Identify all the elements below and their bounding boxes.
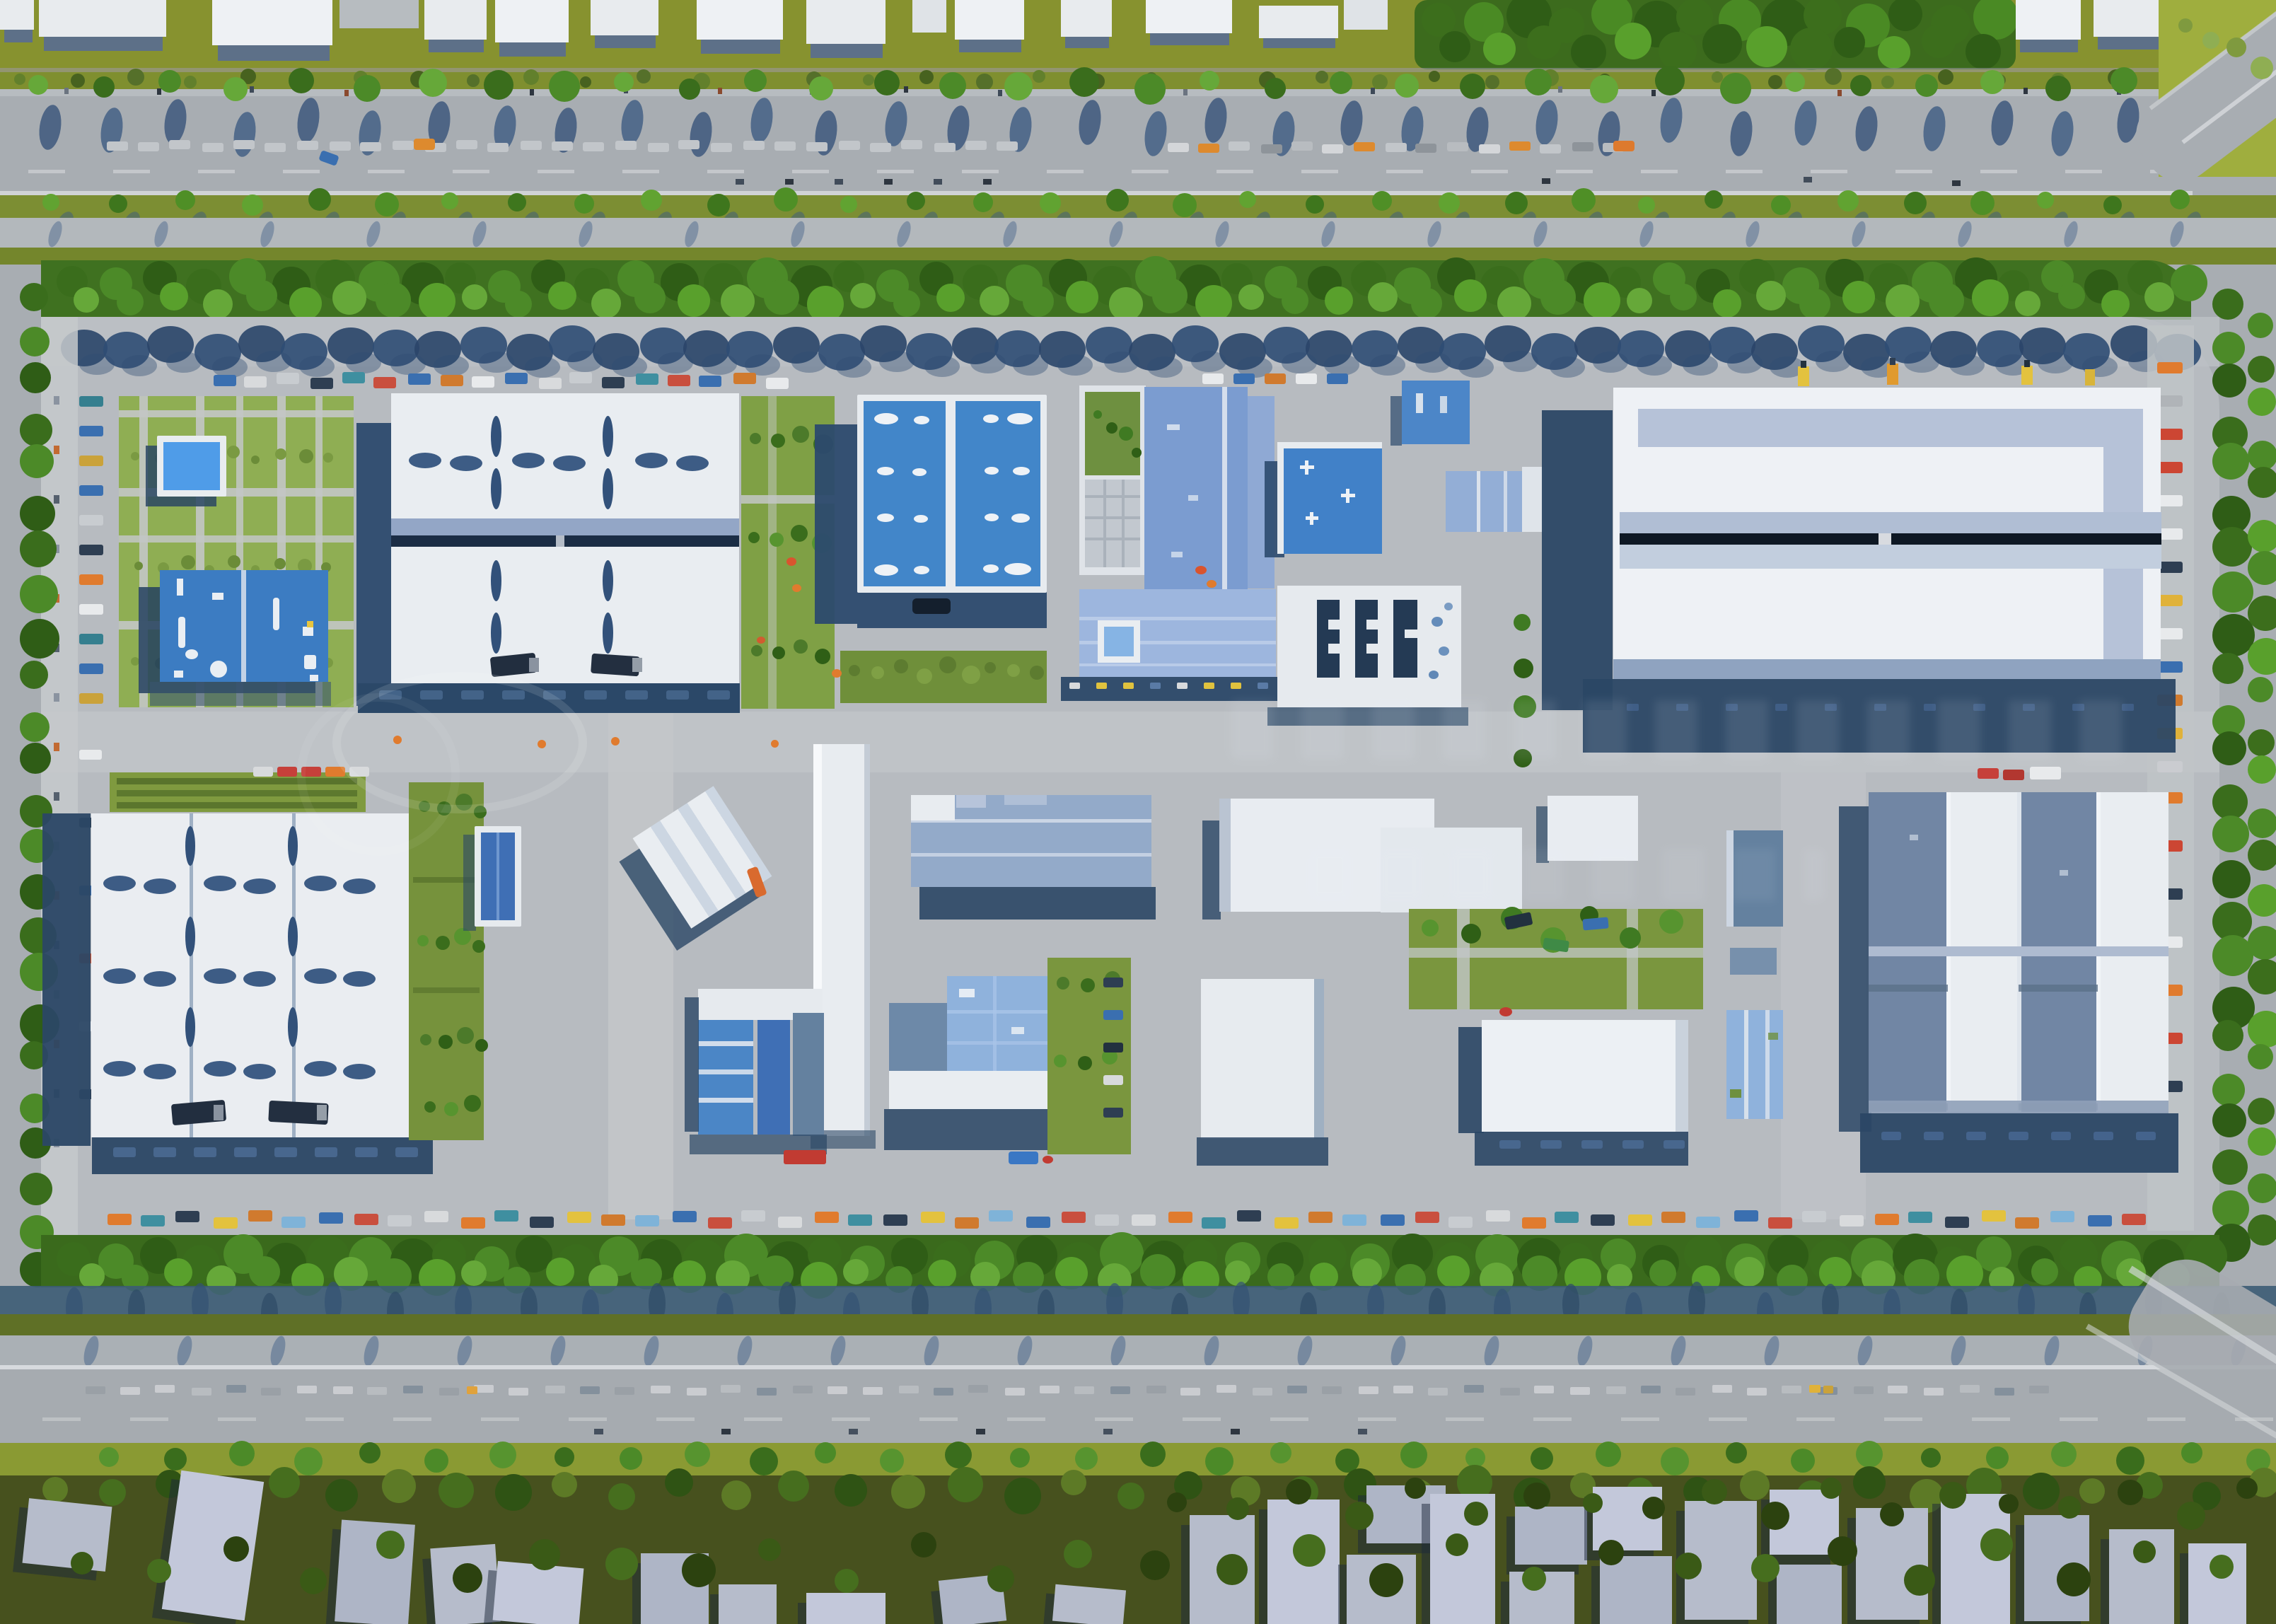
annex2-line — [1477, 471, 1480, 532]
cross-mark — [1305, 460, 1308, 475]
bottom-trees-over — [147, 1559, 171, 1583]
small-blue-block-shadow — [1390, 396, 1402, 446]
grove-trees — [1439, 31, 1470, 62]
warehouse1-west-shadow — [356, 423, 392, 706]
verge-trees-south — [99, 1447, 119, 1467]
roof-equipment-icon-yellow — [307, 621, 313, 627]
median-trees — [641, 190, 662, 211]
north-trees — [2015, 291, 2040, 316]
median-vehicle — [793, 1386, 813, 1393]
parked-car-south-row — [1486, 1210, 1510, 1222]
flower-bed-red — [757, 637, 765, 644]
hedge-dots — [523, 69, 539, 85]
lane-dash — [1884, 1417, 1922, 1421]
verge-trees — [1069, 67, 1099, 97]
median-vehicle — [1572, 142, 1593, 151]
dock-door-mark — [2136, 1132, 2156, 1140]
median-vehicle — [86, 1386, 105, 1394]
west-tree-column — [20, 362, 51, 393]
bottom-trees — [608, 1483, 635, 1510]
cone — [611, 737, 620, 746]
roof-unit — [959, 989, 975, 997]
parked-car-south-row — [1342, 1214, 1366, 1226]
truck-cab — [214, 1105, 223, 1120]
roof-vent-pod — [409, 453, 441, 468]
inner-garden-trees — [792, 426, 809, 443]
top-building — [806, 0, 886, 44]
median-vehicle — [1570, 1387, 1590, 1395]
roof-vent-drop — [185, 917, 195, 956]
roof-vent-drop — [603, 560, 613, 601]
bottom-trees-over — [2210, 1555, 2234, 1579]
dock-door-mark — [1622, 1140, 1644, 1149]
north-tree-shadow-soft — [1683, 354, 1718, 376]
lane-dash — [1386, 170, 1423, 173]
parked-car-west — [79, 604, 103, 615]
parked-car-east — [2157, 628, 2183, 639]
north-tree-shadow-soft — [1324, 354, 1359, 376]
parked-car-mid-road — [277, 767, 297, 777]
verge-trees — [419, 69, 447, 97]
verge-trees — [874, 70, 900, 95]
roof-vent-pod — [103, 968, 136, 984]
roof-vent-pod — [144, 878, 176, 894]
roof-equipment-icon — [177, 579, 183, 596]
roof-vent-pod — [450, 456, 482, 471]
dock-door-mark — [1881, 1132, 1901, 1140]
bottom-trees-over — [1293, 1534, 1325, 1567]
parked-car-south-row — [883, 1214, 907, 1226]
east-tree-column — [2212, 364, 2246, 398]
skylight-blob — [1007, 413, 1033, 424]
bottom-trees-over — [1999, 1494, 2019, 1514]
bottom-trees — [1061, 1470, 1086, 1495]
median-vehicle — [393, 141, 414, 150]
median-vehicle — [1386, 143, 1407, 152]
roof-banner-tip — [1890, 358, 1895, 365]
inner-garden-trees — [751, 645, 762, 656]
orange-car — [832, 669, 842, 678]
hedge-dots — [127, 69, 144, 86]
skylight-blob — [983, 564, 999, 573]
median-trees — [574, 194, 594, 214]
bottom-trees-over — [987, 1565, 1014, 1592]
warehouse2-lower-slope — [1620, 545, 2161, 569]
red-car — [1499, 1007, 1512, 1016]
north-trees — [1886, 284, 1920, 318]
garden-path — [119, 410, 354, 417]
parked-car-north-row — [277, 373, 299, 384]
lane-dash — [1095, 1417, 1133, 1421]
dock-door-mark — [395, 1147, 418, 1157]
parked-car-north-row — [441, 375, 463, 386]
truck-cab — [632, 658, 642, 672]
parked-car-south-row — [1802, 1211, 1826, 1222]
east-tree-column — [2212, 572, 2253, 613]
verge-trees-south — [1921, 1448, 1941, 1468]
residence-block — [719, 1584, 777, 1624]
verge-trees — [28, 75, 48, 95]
north-trees — [591, 289, 621, 318]
lane-dash — [2065, 170, 2102, 173]
east-tree-column — [2212, 731, 2246, 765]
pedestrian-dot — [904, 86, 908, 93]
lane-dash — [1895, 170, 1932, 173]
lane-dash — [113, 170, 150, 173]
corner-grass-tufts — [2178, 18, 2193, 33]
panel-building-shadow — [685, 997, 699, 1132]
parked-car-south-row — [1908, 1212, 1932, 1223]
verge-trees — [939, 72, 966, 99]
median-trees — [508, 193, 526, 211]
roof-vent-pod — [512, 453, 545, 468]
median-trees — [1106, 189, 1129, 211]
north-trees — [1756, 281, 1786, 311]
parked-car-south-row — [175, 1211, 199, 1222]
north-trees — [764, 279, 799, 315]
east-tree-column — [2212, 527, 2252, 567]
pavilion-blue-roof — [163, 442, 220, 490]
top-building — [39, 0, 166, 37]
south-road — [0, 1369, 2276, 1443]
parked-car-mid-road — [253, 767, 273, 777]
parked-car-south-row — [248, 1210, 272, 1222]
north-trees — [1972, 279, 2009, 316]
median-vehicle — [863, 1387, 883, 1395]
east-tree-column — [2248, 388, 2276, 416]
scooter-row — [1177, 683, 1188, 689]
parked-car-mid — [1103, 1010, 1123, 1020]
median-vehicle — [1854, 1386, 1874, 1394]
parked-car-south-row — [708, 1217, 732, 1229]
east-tree-column — [2248, 356, 2275, 383]
east-tree-column — [2212, 816, 2249, 852]
east-tree-column — [2212, 1190, 2249, 1227]
roof-vent-drop — [491, 468, 501, 509]
pedestrian-dot — [64, 88, 69, 94]
parked-bike-west — [54, 693, 59, 702]
east-tree-column — [2248, 1098, 2275, 1125]
black-car — [912, 598, 951, 614]
warehouse2-top-inset — [1638, 409, 2143, 447]
roof-vent-pod — [343, 878, 376, 894]
west-tree-column — [20, 619, 59, 659]
motorbike-dot — [1804, 177, 1812, 182]
north-tree-shadow-soft — [1147, 356, 1183, 378]
slope-mark — [1910, 835, 1918, 840]
verge-trees-south — [880, 1449, 904, 1473]
bottom-trees-over — [1675, 1553, 1702, 1579]
parked-car-west — [79, 545, 103, 555]
corner-grass-tufts — [2202, 32, 2219, 49]
dock-door-mark — [1581, 1140, 1603, 1149]
hedge-line — [413, 987, 480, 993]
verge-trees — [549, 71, 580, 102]
e-lightwell — [1317, 600, 1340, 678]
bluefacade-stripe — [1744, 1010, 1748, 1119]
panel-building-wing — [793, 1013, 824, 1136]
inner-garden-trees — [791, 525, 808, 542]
median-vehicle — [202, 143, 223, 152]
verge-trees — [484, 70, 513, 100]
pedestrian-dot — [530, 89, 534, 95]
north-tree-shadow-soft — [1104, 352, 1139, 373]
median-vehicle — [678, 140, 699, 149]
bluefacade-stripe — [1765, 1010, 1770, 1119]
parked-car-south-row — [989, 1210, 1013, 1222]
garden-shrubs — [251, 456, 260, 464]
parked-car-west — [79, 396, 103, 407]
bottom-trees-over — [1939, 1482, 1966, 1509]
parked-car-north-row — [1202, 373, 1224, 384]
median-vehicle — [615, 1387, 634, 1395]
east-tree-column — [2212, 332, 2245, 364]
north-trees — [332, 281, 366, 315]
skylight-blob — [874, 564, 898, 576]
north-trees — [634, 282, 666, 313]
east-tree-column — [2212, 860, 2251, 898]
median-vehicle — [1464, 1385, 1484, 1393]
panel-stripe — [698, 1098, 753, 1103]
hedge-dots — [1768, 75, 1782, 89]
median-vehicle — [1509, 141, 1531, 151]
e-lightwell — [1393, 600, 1417, 678]
lane-dash — [1047, 170, 1084, 173]
verge-trees — [1590, 75, 1618, 103]
lane-dash — [1726, 170, 1763, 173]
column-trees — [417, 935, 429, 946]
parked-car-south-row — [1275, 1217, 1299, 1229]
parked-car-south-row — [141, 1215, 165, 1226]
parked-car-east — [2157, 362, 2183, 373]
parked-car-mid — [1103, 978, 1123, 987]
dock-door-mark — [584, 690, 607, 700]
scooter-row — [1204, 683, 1214, 689]
north-trees — [1066, 281, 1098, 313]
bottom-trees — [721, 1480, 751, 1510]
grove-trees — [1571, 35, 1606, 70]
median-vehicle — [1110, 1386, 1130, 1394]
roof-vent-pod — [103, 876, 136, 891]
parked-car-south-row — [214, 1217, 238, 1229]
south-sidewalk-of-road — [0, 218, 2276, 248]
warehouse2-upper-slope — [1620, 512, 2161, 535]
parked-car-north-row — [505, 373, 528, 384]
parked-car-south-row — [1840, 1215, 1864, 1226]
east-tree-column — [2248, 596, 2276, 631]
median-vehicle — [1428, 1388, 1448, 1396]
median-vehicle — [1641, 1386, 1661, 1393]
lane-dash — [1972, 1417, 2010, 1421]
pedestrian-dot — [250, 86, 254, 93]
grove-trees — [1615, 23, 1651, 59]
roof-vent-pod — [204, 876, 236, 891]
median-vehicle — [261, 1388, 281, 1396]
campus-vertical-road — [608, 713, 673, 1219]
median-trees — [1372, 191, 1392, 211]
verge-trees — [1655, 66, 1685, 95]
east-tree-column — [2212, 289, 2243, 320]
parked-car-north-row — [472, 376, 494, 388]
garden-shrubs — [228, 555, 240, 568]
lane-dash — [1709, 1417, 1747, 1421]
bottom-trees-over — [1286, 1479, 1311, 1504]
bluefacade-building — [1726, 1010, 1783, 1119]
median-vehicle — [169, 140, 190, 149]
east-tree-column — [2212, 1074, 2245, 1106]
median-vehicle — [1146, 1386, 1166, 1393]
bottom-trees — [665, 1468, 693, 1497]
roof-equipment-icon — [304, 655, 316, 669]
motorbike-dot — [835, 179, 843, 185]
parked-car-south-row — [1381, 1214, 1405, 1226]
south-trees — [79, 1263, 105, 1289]
cross-mark — [1346, 489, 1349, 503]
roof-banner — [2085, 369, 2095, 385]
facade-green-bit — [1768, 1033, 1778, 1040]
verge-trees-south — [294, 1447, 323, 1475]
motorbike-dot — [884, 179, 893, 185]
parked-car-south-row — [1132, 1214, 1156, 1226]
median-vehicle — [687, 1388, 707, 1396]
south-trees — [1734, 1257, 1764, 1287]
median-vehicle — [120, 1387, 140, 1395]
median-vehicle — [1287, 1386, 1307, 1393]
east-tree-column — [2212, 1149, 2248, 1185]
dock-door-mark — [1499, 1140, 1521, 1149]
top-pavement — [339, 0, 419, 28]
median-trees — [1239, 191, 1256, 208]
median-trees — [1505, 192, 1528, 214]
east-tree-column — [2248, 313, 2273, 338]
north-trees — [2058, 282, 2085, 309]
parked-car-north-row — [766, 378, 789, 389]
parked-car-west — [79, 456, 103, 466]
north-trees — [1929, 283, 1964, 318]
roof-banner — [2021, 366, 2033, 385]
verge-trees — [2110, 67, 2137, 94]
north-trees — [850, 283, 876, 308]
lane-dash — [1811, 170, 1847, 173]
roof-equipment-icon — [178, 617, 185, 648]
facade-line — [1085, 495, 1140, 498]
median-vehicle — [1676, 1388, 1695, 1396]
top-building — [212, 0, 332, 45]
cluster-slate-edge — [1219, 799, 1231, 912]
mid-garden-trees — [1057, 977, 1069, 990]
top-building — [1344, 0, 1388, 30]
skylight-blob — [914, 566, 929, 574]
median-vehicle — [839, 141, 860, 150]
north-trees — [1109, 287, 1143, 321]
verge-trees — [354, 75, 381, 102]
north-trees — [1454, 279, 1487, 312]
residence-block — [806, 1593, 886, 1624]
residence-block — [1600, 1556, 1672, 1624]
lane-dash — [1621, 1417, 1659, 1421]
south-trees — [249, 1256, 280, 1287]
grove-trees — [1746, 26, 1787, 67]
north-tree-shadow-soft — [1904, 352, 1939, 373]
west-tree-column — [20, 444, 54, 478]
top-building — [424, 0, 487, 40]
median-vehicle — [1322, 1386, 1342, 1394]
median-vehicle — [1415, 144, 1436, 153]
bottom-trees-over — [71, 1552, 93, 1574]
north-tree-shadow-soft — [1637, 354, 1672, 376]
red-truck — [784, 1150, 826, 1164]
bottom-trees — [1853, 1466, 1886, 1499]
watermark-text-ghost — [1231, 700, 2129, 760]
bottom-trees — [1740, 1471, 1770, 1500]
median-trees — [441, 192, 458, 209]
east-tree-column — [2212, 784, 2248, 820]
parked-car-south-row — [567, 1212, 591, 1223]
median-vehicle — [1782, 1386, 1801, 1393]
bottom-trees-over — [682, 1553, 716, 1587]
north-trees — [1023, 286, 1054, 317]
lane-dash — [1471, 170, 1508, 173]
north-tree-shadow-soft — [836, 356, 871, 378]
west-tree-column — [20, 414, 52, 446]
warehouse4-seam — [1869, 946, 2168, 956]
pedestrian-dot — [1837, 90, 1842, 96]
garden-shrubs — [134, 562, 143, 570]
column-trees — [457, 1027, 474, 1044]
median-vehicle — [330, 141, 351, 151]
grove-trees — [1834, 27, 1865, 58]
roof-vent-pod — [553, 456, 586, 471]
shadow-edge-trees — [1514, 614, 1531, 631]
verge-trees — [1460, 74, 1485, 99]
verge-trees-south — [685, 1442, 710, 1467]
bottom-trees-over — [758, 1538, 781, 1561]
bottom-trees-over — [911, 1532, 936, 1558]
roof-vent-drop — [288, 1007, 298, 1047]
block-mark — [1440, 396, 1447, 413]
verge-trees-south — [945, 1442, 972, 1468]
cone — [771, 740, 779, 748]
lane-dash — [1533, 1417, 1572, 1421]
median-vehicle — [615, 141, 637, 150]
parked-car-south-row — [673, 1211, 697, 1222]
roof-banner — [1798, 366, 1809, 386]
dock-door-mark — [194, 1147, 216, 1157]
south-sidewalk — [0, 1335, 2276, 1367]
north-tree-shadow-soft — [1013, 354, 1048, 376]
steelroof-line — [911, 853, 1151, 857]
parked-car-west — [79, 634, 103, 644]
skylight-blob — [877, 467, 894, 475]
lane-dash — [877, 170, 914, 173]
median-vehicle — [1712, 1385, 1732, 1393]
roof-vent-pod — [304, 968, 337, 984]
median-vehicle — [965, 141, 987, 150]
vehicle-dot — [849, 1429, 858, 1434]
cluster-slab-edge — [1314, 979, 1324, 1139]
median-vehicle — [1479, 144, 1500, 153]
lane-dash — [198, 170, 235, 173]
parked-car-north-row — [244, 376, 267, 388]
median-vehicle — [828, 1386, 847, 1394]
bottom-trees — [891, 1475, 925, 1509]
east-tree-column — [2212, 443, 2249, 480]
warehouse4-bottom-band — [1869, 1101, 2168, 1113]
lane-dash — [453, 170, 489, 173]
north-tree-shadow-soft — [479, 352, 514, 373]
median-vehicle — [265, 143, 286, 152]
top-building — [0, 0, 34, 30]
